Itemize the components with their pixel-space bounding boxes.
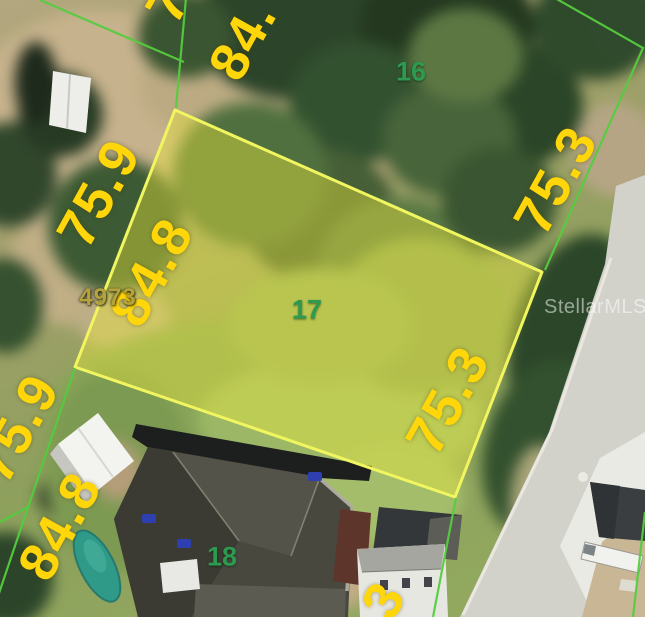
stellar-mls-watermark: StellarMLS — [544, 297, 645, 317]
lot-number-18: 18 — [207, 544, 237, 571]
lot-number-16: 16 — [396, 59, 426, 86]
shed — [49, 71, 91, 133]
lot-number-17: 17 — [292, 297, 322, 324]
aerial-parcel-map: 7 84. 75.9 84.8 75.3 75.3 75.9 84.8 3 16… — [0, 0, 645, 617]
parcel-number-label: 4973 — [79, 286, 136, 310]
